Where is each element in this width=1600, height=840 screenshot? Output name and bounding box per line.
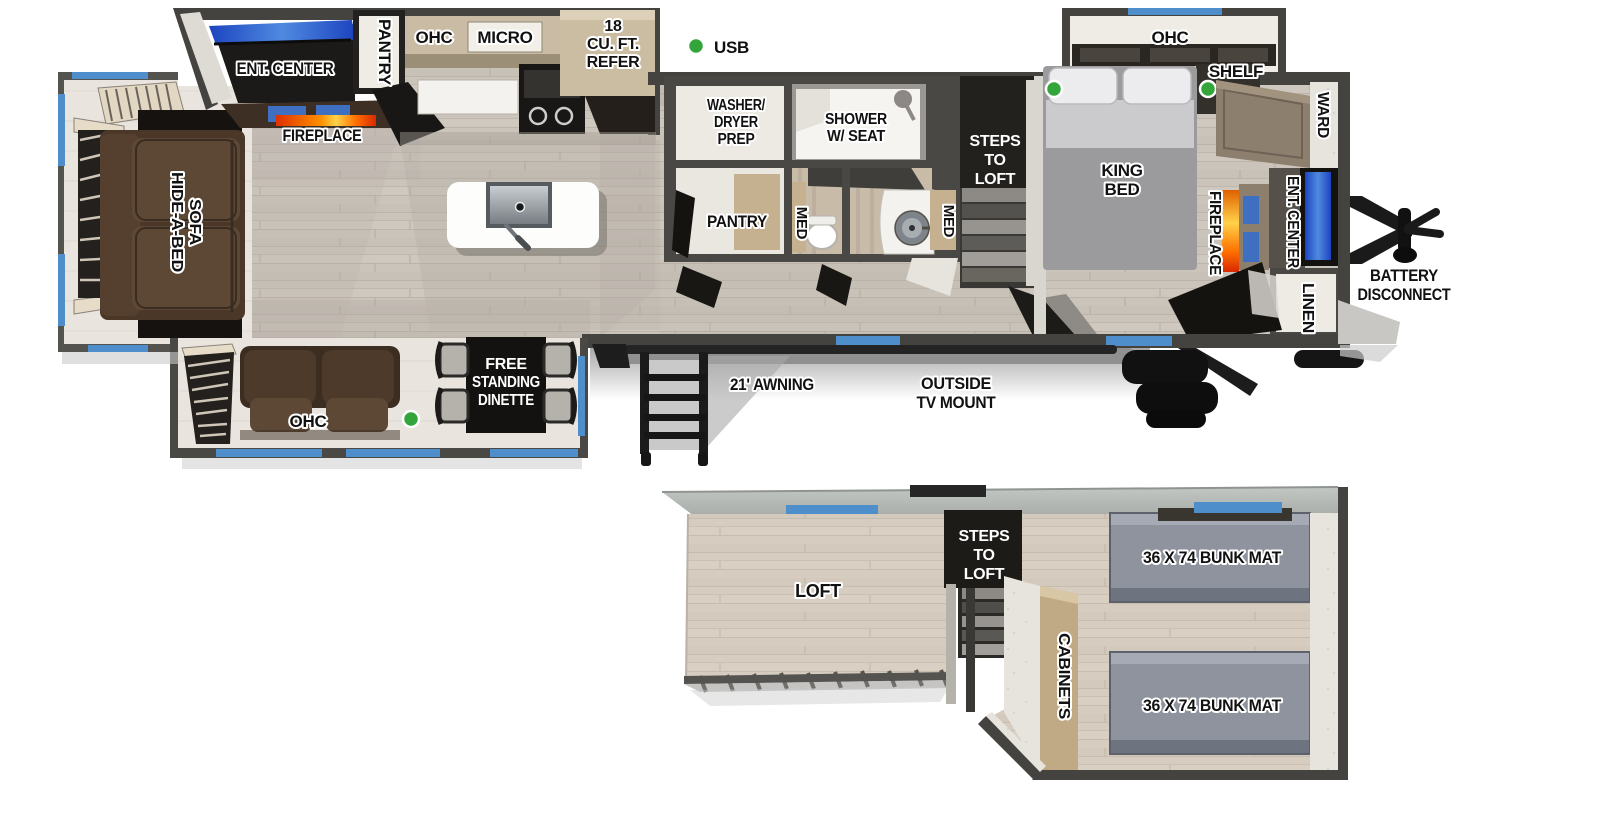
svg-text:OHC: OHC	[290, 412, 327, 431]
svg-text:MED: MED	[940, 205, 957, 238]
svg-text:LINEN: LINEN	[1299, 283, 1316, 333]
svg-text:TO: TO	[973, 547, 994, 564]
svg-text:18: 18	[604, 18, 622, 35]
svg-text:36 X 74 BUNK MAT: 36 X 74 BUNK MAT	[1143, 548, 1282, 567]
svg-text:FREE: FREE	[485, 356, 527, 373]
svg-text:PREP: PREP	[718, 131, 755, 148]
svg-text:LOFT: LOFT	[964, 566, 1005, 583]
svg-text:DINETTE: DINETTE	[478, 392, 535, 409]
svg-text:MED: MED	[793, 207, 810, 240]
svg-text:MICRO: MICRO	[477, 28, 532, 47]
svg-text:SHELF: SHELF	[1209, 62, 1263, 81]
svg-text:SOFA: SOFA	[186, 199, 203, 246]
svg-text:WARD: WARD	[1314, 92, 1331, 138]
svg-text:LOFT: LOFT	[975, 171, 1016, 188]
svg-text:FIREPLACE: FIREPLACE	[283, 126, 362, 145]
svg-text:TO: TO	[984, 152, 1005, 169]
svg-text:OHC: OHC	[416, 28, 453, 47]
svg-text:DRYER: DRYER	[714, 114, 758, 131]
svg-text:ENT. CENTER: ENT. CENTER	[237, 59, 334, 78]
svg-text:KING: KING	[1101, 161, 1142, 180]
svg-text:PANTRY: PANTRY	[375, 19, 394, 86]
svg-text:PANTRY: PANTRY	[707, 212, 768, 231]
svg-text:W/ SEAT: W/ SEAT	[827, 128, 886, 145]
svg-text:TV MOUNT: TV MOUNT	[917, 393, 997, 412]
svg-text:36 X 74 BUNK MAT: 36 X 74 BUNK MAT	[1143, 696, 1282, 715]
svg-text:FIREPLACE: FIREPLACE	[1206, 191, 1223, 276]
svg-text:SHOWER: SHOWER	[825, 111, 887, 128]
svg-text:CABINETS: CABINETS	[1055, 633, 1072, 720]
svg-text:WASHER/: WASHER/	[707, 97, 766, 114]
svg-text:REFER: REFER	[587, 54, 640, 71]
svg-text:HIDE-A-BED: HIDE-A-BED	[168, 172, 185, 272]
svg-text:USB: USB	[714, 38, 749, 57]
svg-text:LOFT: LOFT	[795, 581, 841, 601]
svg-text:21' AWNING: 21' AWNING	[730, 375, 814, 394]
svg-text:ENT. CENTER: ENT. CENTER	[1284, 176, 1301, 269]
svg-text:CU. FT.: CU. FT.	[587, 36, 639, 53]
svg-text:OHC: OHC	[1152, 28, 1189, 47]
svg-text:BED: BED	[1105, 180, 1140, 199]
svg-text:DISCONNECT: DISCONNECT	[1358, 285, 1452, 304]
svg-text:STANDING: STANDING	[472, 374, 540, 391]
svg-text:STEPS: STEPS	[970, 133, 1022, 150]
svg-text:BATTERY: BATTERY	[1370, 266, 1439, 285]
svg-text:OUTSIDE: OUTSIDE	[921, 374, 991, 393]
svg-text:STEPS: STEPS	[959, 528, 1011, 545]
